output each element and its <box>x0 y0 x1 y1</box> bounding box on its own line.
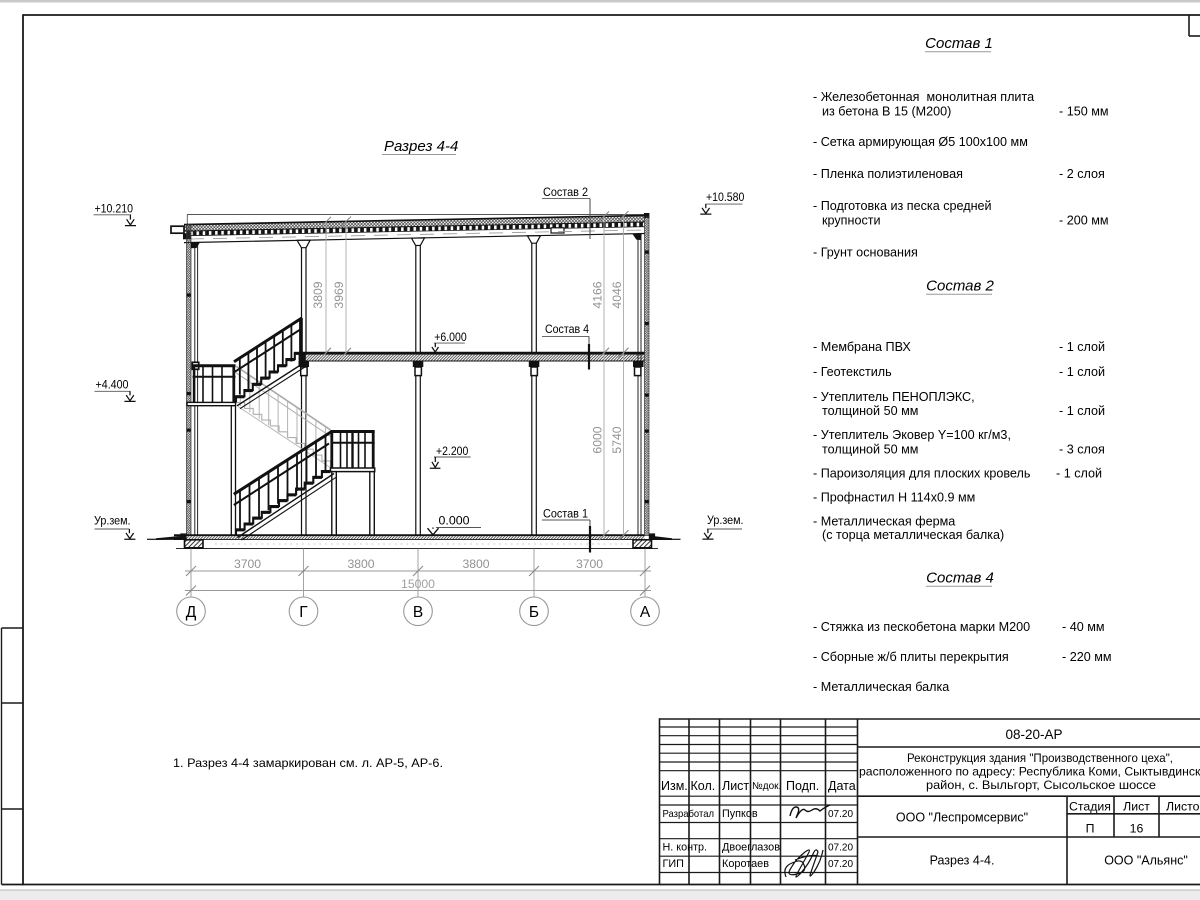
svg-text:Двоеглазов: Двоеглазов <box>722 842 780 854</box>
svg-text:- Сборные ж/б плиты перекрытия: - Сборные ж/б плиты перекрытия <box>813 650 1009 664</box>
svg-text:Изм.: Изм. <box>661 779 688 793</box>
svg-text:Состав 4: Состав 4 <box>545 322 589 336</box>
svg-text:- 1 слой: - 1 слой <box>1059 365 1105 379</box>
svg-text:В: В <box>413 604 423 621</box>
svg-text:Лист: Лист <box>722 779 749 793</box>
svg-text:- 1 слой: - 1 слой <box>1056 467 1102 481</box>
svg-text:5740: 5740 <box>610 426 624 453</box>
svg-text:- 150 мм: - 150 мм <box>1059 105 1109 119</box>
svg-text:07.20: 07.20 <box>828 859 853 870</box>
svg-text:3700: 3700 <box>576 557 603 571</box>
svg-text:3700: 3700 <box>234 557 261 571</box>
svg-text:4166: 4166 <box>591 281 605 308</box>
svg-text:0.000: 0.000 <box>439 514 470 528</box>
svg-text:Листов: Листов <box>1166 800 1200 814</box>
svg-text:- Мембрана ПВХ: - Мембрана ПВХ <box>813 340 911 354</box>
svg-text:Д: Д <box>186 604 197 621</box>
svg-text:Состав 4: Состав 4 <box>926 570 994 587</box>
svg-text:+10.210: +10.210 <box>95 202 134 216</box>
svg-text:Ур.зем.: Ур.зем. <box>94 514 131 528</box>
svg-text:+10.580: +10.580 <box>706 190 744 204</box>
svg-text:- Стяжка из пескобетона марки: - Стяжка из пескобетона марки М200 <box>813 620 1030 634</box>
svg-text:из бетона В 15 (М200): из бетона В 15 (М200) <box>822 105 951 119</box>
svg-text:Состав 2: Состав 2 <box>543 185 588 199</box>
svg-text:толщиной 50 мм: толщиной 50 мм <box>822 404 918 418</box>
svg-text:П: П <box>1086 822 1095 836</box>
svg-text:- Профнастил Н 114х0.9 мм: - Профнастил Н 114х0.9 мм <box>813 491 975 505</box>
svg-text:- 200 мм: - 200 мм <box>1059 214 1109 228</box>
svg-text:Коротаев: Коротаев <box>722 858 769 870</box>
svg-text:- Грунт основания: - Грунт основания <box>813 246 918 260</box>
svg-text:+4.400: +4.400 <box>96 378 129 392</box>
svg-text:- Металлическая балка: - Металлическая балка <box>813 680 949 694</box>
svg-text:- 40 мм: - 40 мм <box>1062 620 1105 634</box>
svg-text:Б: Б <box>529 604 539 621</box>
svg-text:- 220 мм: - 220 мм <box>1062 650 1112 664</box>
svg-text:- 3 слоя: - 3 слоя <box>1059 443 1105 457</box>
svg-text:крупности: крупности <box>822 214 881 228</box>
svg-text:Реконструкция здания "Производ: Реконструкция здания "Производственного … <box>907 751 1173 765</box>
svg-text:Разработал: Разработал <box>663 808 715 820</box>
svg-text:Состав 2: Состав 2 <box>926 278 994 295</box>
svg-text:Разрез 4-4: Разрез 4-4 <box>384 138 458 155</box>
svg-text:расположенного по адресу: Респ: расположенного по адресу: Республика Ком… <box>859 765 1200 779</box>
svg-text:- Утеплитель Эковер Y=100 кг/м: - Утеплитель Эковер Y=100 кг/м3, <box>813 428 1011 442</box>
svg-text:3969: 3969 <box>332 281 346 308</box>
svg-text:район, с. Выльгорт, Сысольское: район, с. Выльгорт, Сысольское шоссе <box>926 778 1156 792</box>
svg-text:- Пленка полиэтиленовая: - Пленка полиэтиленовая <box>813 167 963 181</box>
svg-text:ГИП: ГИП <box>663 858 684 870</box>
svg-text:Дата: Дата <box>828 779 856 793</box>
svg-text:- 2 слоя: - 2 слоя <box>1059 167 1105 181</box>
svg-text:ООО "Альянс": ООО "Альянс" <box>1104 854 1188 868</box>
svg-text:Состав 1: Состав 1 <box>925 35 993 52</box>
svg-text:Кол.: Кол. <box>691 779 716 793</box>
svg-text:Стадия: Стадия <box>1069 800 1111 814</box>
svg-text:А: А <box>640 604 651 621</box>
svg-text:- Железобетонная монолитная п: - Железобетонная монолитная плита <box>813 90 1034 104</box>
svg-text:- 1 слой: - 1 слой <box>1059 340 1105 354</box>
svg-text:07.20: 07.20 <box>828 809 853 820</box>
svg-text:№док.: №док. <box>752 781 781 792</box>
svg-text:3800: 3800 <box>462 557 489 571</box>
svg-text:- Пароизоляция для плоских кро: - Пароизоляция для плоских кровель <box>813 467 1031 481</box>
svg-text:Разрез 4-4.: Разрез 4-4. <box>930 854 995 868</box>
svg-text:16: 16 <box>1130 822 1144 836</box>
svg-text:толщиной 50 мм: толщиной 50 мм <box>822 443 918 457</box>
svg-text:3800: 3800 <box>347 557 374 571</box>
svg-text:ООО "Леспромсервис": ООО "Леспромсервис" <box>896 811 1028 825</box>
svg-text:- Металлическая ферма: - Металлическая ферма <box>813 515 955 529</box>
svg-text:1. Разрез 4-4 замаркирован см.: 1. Разрез 4-4 замаркирован см. л. АР-5, … <box>173 756 443 770</box>
svg-text:- Сетка армирующая Ø5 100х100: - Сетка армирующая Ø5 100х100 мм <box>813 135 1028 149</box>
svg-text:- Подготовка из песка средней: - Подготовка из песка средней <box>813 199 992 213</box>
svg-text:- 1 слой: - 1 слой <box>1059 404 1105 418</box>
svg-text:08-20-АР: 08-20-АР <box>1005 727 1062 742</box>
svg-text:Ур.зем.: Ур.зем. <box>707 513 744 527</box>
svg-text:Г: Г <box>299 604 308 621</box>
svg-text:- Геотекстиль: - Геотекстиль <box>813 365 892 379</box>
svg-text:07.20: 07.20 <box>828 843 853 854</box>
svg-text:6000: 6000 <box>591 426 605 453</box>
svg-text:(с торца металлическая балка): (с торца металлическая балка) <box>822 528 1004 542</box>
svg-text:Лист: Лист <box>1123 800 1150 814</box>
svg-text:Состав 1: Состав 1 <box>543 507 588 521</box>
svg-text:4046: 4046 <box>610 281 624 308</box>
svg-text:+2.200: +2.200 <box>436 444 468 458</box>
svg-text:15000: 15000 <box>401 577 435 591</box>
svg-text:- Утеплитель ПЕНОПЛЭКС,: - Утеплитель ПЕНОПЛЭКС, <box>813 390 975 404</box>
svg-text:Подп.: Подп. <box>786 779 819 793</box>
svg-text:Пупков: Пупков <box>722 808 758 820</box>
svg-text:3809: 3809 <box>311 281 325 308</box>
svg-text:Н. контр.: Н. контр. <box>663 842 708 854</box>
svg-text:+6.000: +6.000 <box>434 330 466 344</box>
